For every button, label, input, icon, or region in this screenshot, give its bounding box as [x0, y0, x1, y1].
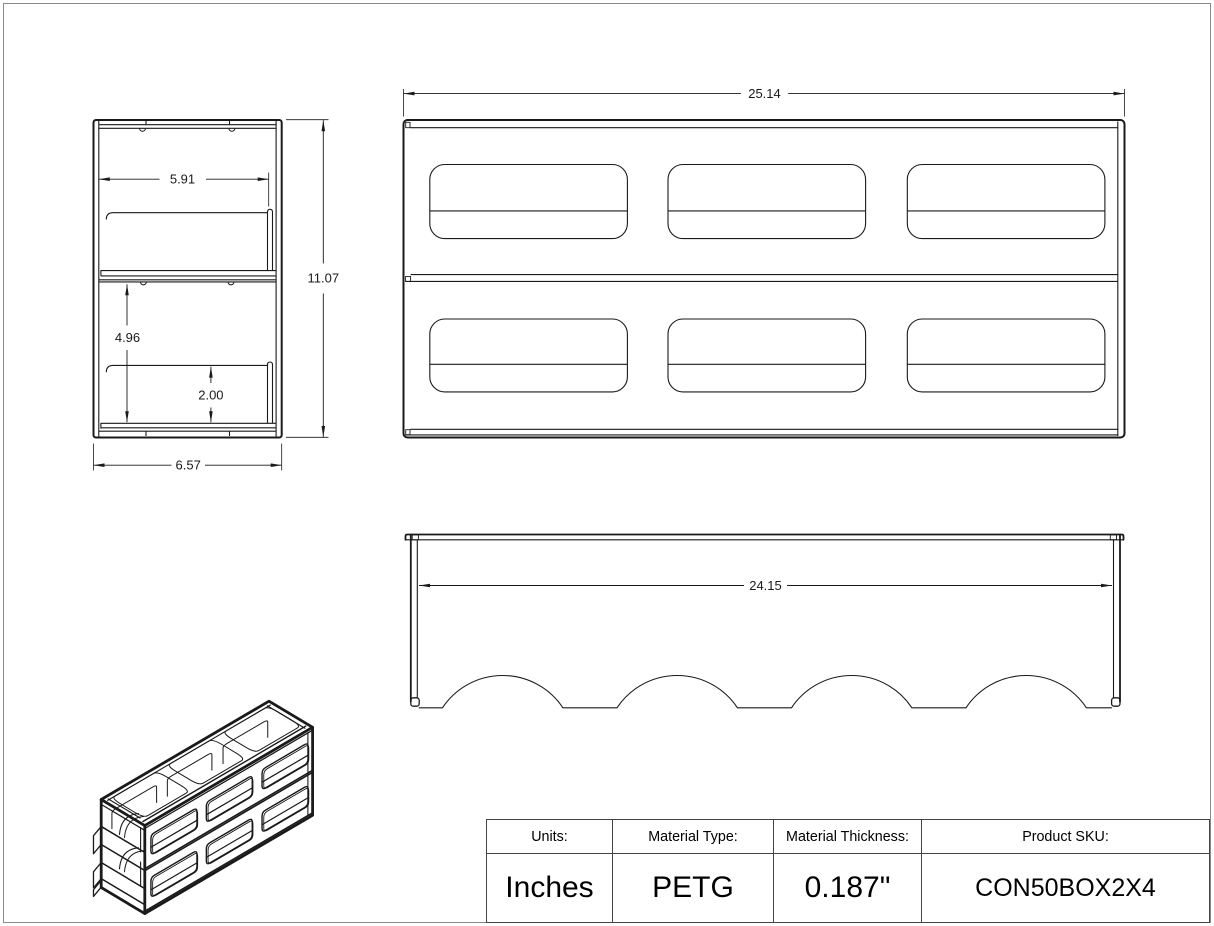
svg-text:5.91: 5.91 — [170, 172, 195, 187]
svg-text:2.00: 2.00 — [198, 387, 223, 402]
svg-text:25.14: 25.14 — [748, 86, 781, 101]
svg-text:4.96: 4.96 — [115, 330, 140, 345]
svg-text:24.15: 24.15 — [749, 578, 782, 593]
svg-text:6.57: 6.57 — [176, 458, 201, 473]
svg-text:11.07: 11.07 — [308, 271, 340, 286]
